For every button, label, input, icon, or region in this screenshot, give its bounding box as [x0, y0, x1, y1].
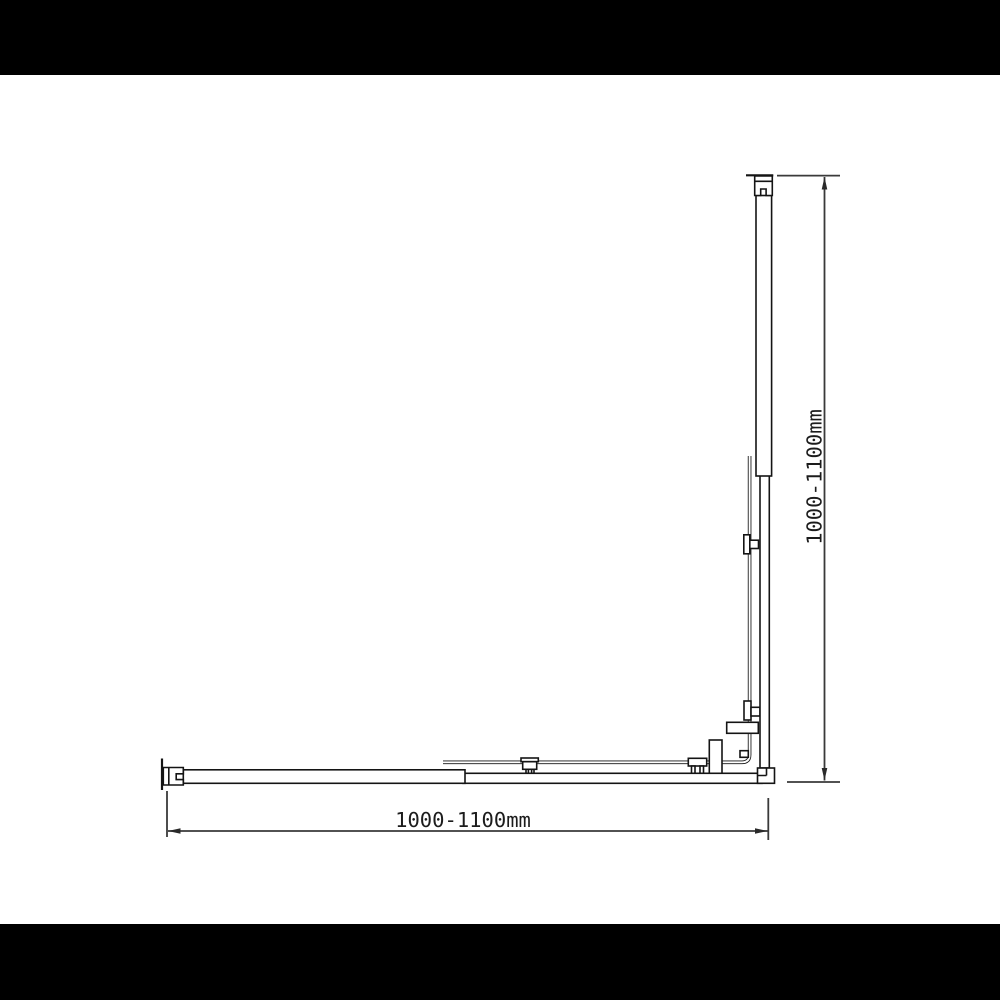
- bracket-leg: [700, 766, 704, 773]
- glass-panel-edge-outline: [443, 456, 750, 762]
- side-sliding-rail: [760, 470, 769, 768]
- wall-bracket-box: [163, 768, 183, 786]
- corner-support-block: [709, 740, 722, 773]
- width-dimension: 1000-1100mm: [167, 791, 768, 840]
- technical-drawing-canvas: 1000-1100mm 1000-1100mm: [0, 0, 1000, 1000]
- wall-bracket-box: [755, 176, 773, 196]
- corner-foot-block: [758, 768, 775, 783]
- glass-corner-clamp: [740, 751, 748, 758]
- clamp-tab: [750, 540, 759, 548]
- height-dimension: 1000-1100mm: [777, 176, 840, 782]
- front-panel-clamp: [521, 758, 538, 774]
- drawing-page: 1000-1100mm 1000-1100mm: [0, 0, 1000, 1000]
- glass-panel-edge: [443, 456, 750, 762]
- clamp-body: [523, 762, 537, 770]
- height-dimension-label: 1000-1100mm: [803, 409, 827, 545]
- arrow-down-icon: [822, 768, 828, 781]
- arrow-up-icon: [822, 177, 828, 190]
- clamp-tab: [751, 707, 760, 716]
- left-wall-profile: [162, 759, 183, 791]
- bracket-leg: [692, 766, 696, 773]
- top-wall-profile: [746, 175, 773, 195]
- side-panel-clamp-lower: [744, 701, 760, 720]
- front-fixed-panel: [183, 770, 465, 784]
- front-corner-bracket: [688, 758, 706, 773]
- side-fixed-panel: [756, 196, 772, 477]
- corner-connector-block: [727, 722, 759, 733]
- clamp-body: [744, 535, 750, 554]
- arrow-right-icon: [755, 828, 768, 834]
- glass-panel-edge-core: [443, 456, 750, 762]
- bracket-plate: [688, 758, 706, 766]
- clamp-body: [744, 701, 751, 720]
- width-dimension-label: 1000-1100mm: [395, 808, 531, 832]
- front-sliding-rail: [463, 773, 762, 783]
- arrow-left-icon: [168, 828, 181, 834]
